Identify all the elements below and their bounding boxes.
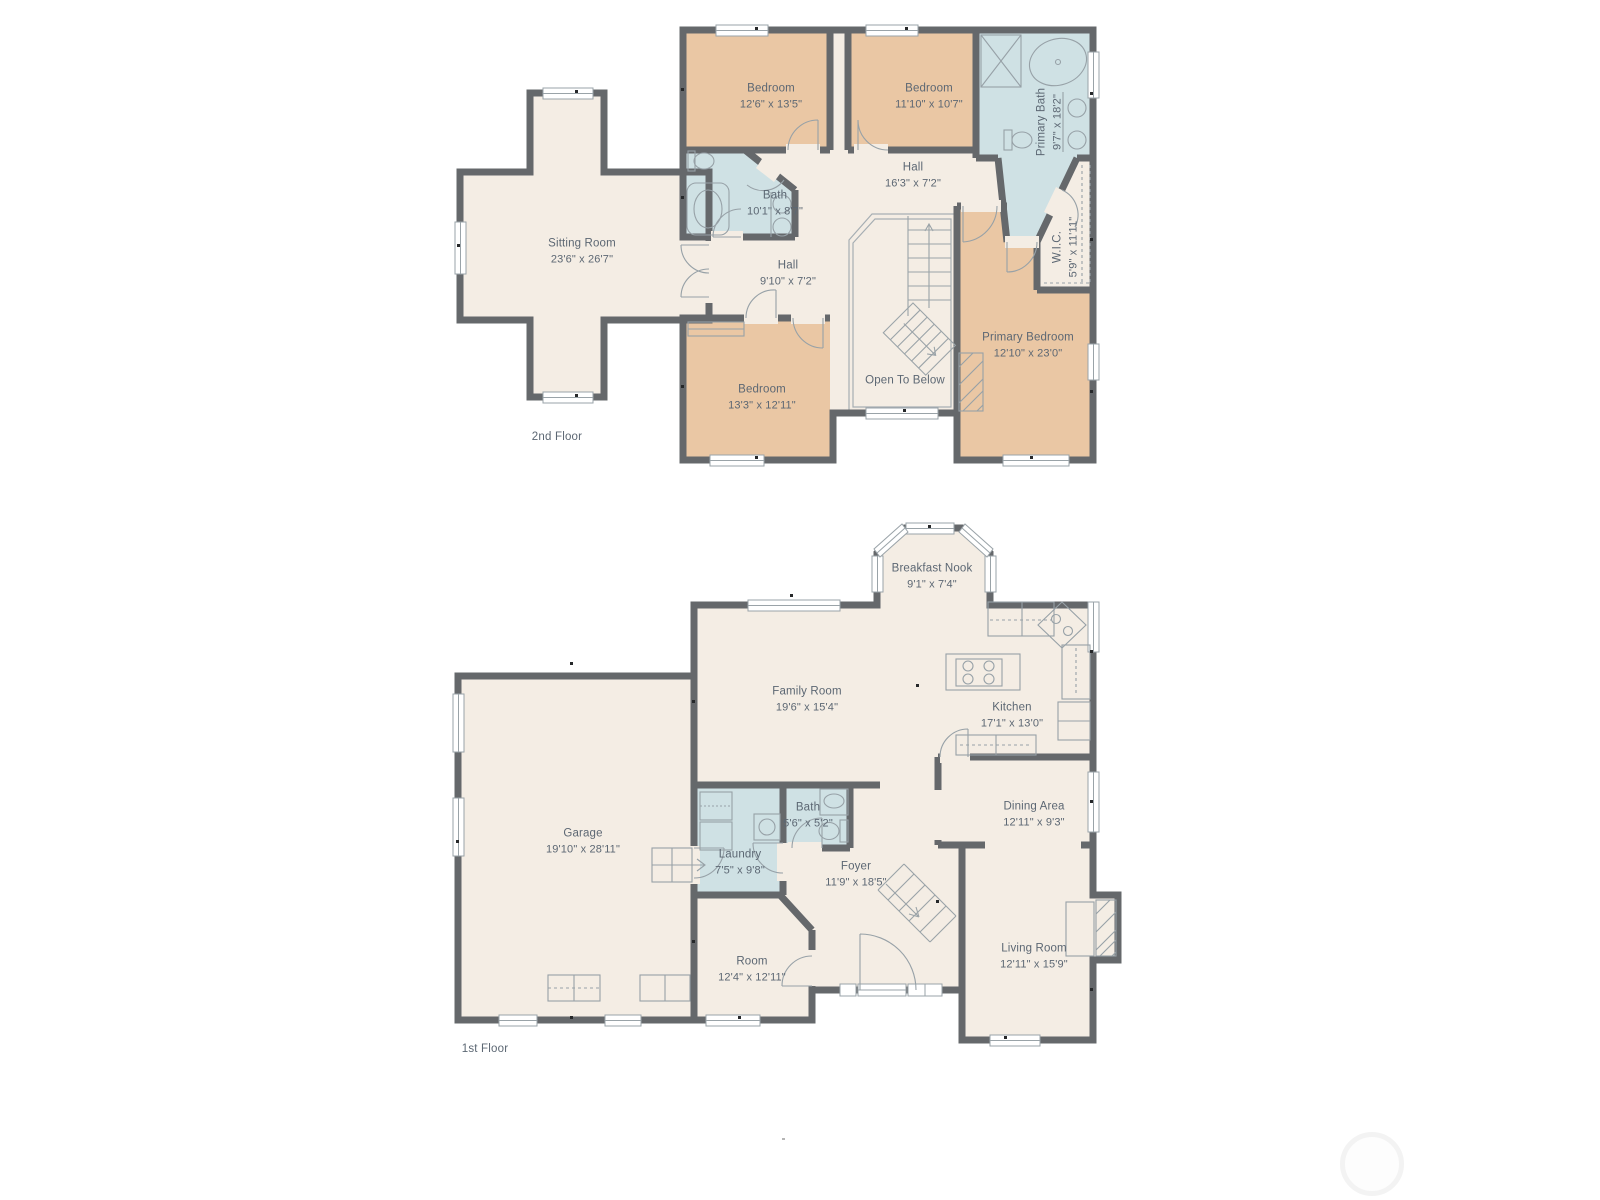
- floor-plan-drawing: [0, 0, 1600, 1200]
- room-label-wic: W.I.C. 5'9" x 11'11": [1050, 217, 1083, 278]
- room-label-foyer: Foyer 11'9" x 18'5": [825, 859, 886, 892]
- room-label-hall-upper: Hall 16'3" x 7'2": [885, 160, 941, 193]
- second-floor-title: 2nd Floor: [532, 431, 582, 443]
- room-label-primary-bedroom: Primary Bedroom 12'10" x 23'0": [982, 330, 1074, 363]
- room-label-open-to-below: Open To Below: [865, 373, 945, 390]
- watermark-circle: [1340, 1132, 1404, 1196]
- room-label-primary-bath: Primary Bath 9'7" x 18'2": [1034, 88, 1067, 156]
- first-floor-title: 1st Floor: [462, 1043, 509, 1055]
- room-label-kitchen: Kitchen 17'1" x 13'0": [981, 700, 1043, 733]
- room-label-laundry: Laundry 7'5" x 9'8": [715, 847, 765, 880]
- room-label-hall-bath: Bath 10'1" x 8'7": [747, 188, 803, 221]
- stray-dot: [782, 1138, 785, 1140]
- floor-plan-page: Bedroom 12'6" x 13'5" Bedroom 11'10" x 1…: [0, 0, 1600, 1200]
- room-label-dining-area: Dining Area 12'11" x 9'3": [1003, 799, 1064, 832]
- room-label-sitting-room: Sitting Room 23'6" x 26'7": [548, 236, 616, 269]
- room-label-room: Room 12'4" x 12'11": [718, 954, 786, 987]
- room-label-bedroom-bottom: Bedroom 13'3" x 12'11": [728, 382, 796, 415]
- front-door: [840, 984, 942, 996]
- room-label-bedroom-top-mid: Bedroom 11'10" x 10'7": [895, 81, 963, 114]
- room-label-living-room: Living Room 12'11" x 15'9": [1000, 941, 1068, 974]
- room-label-family-room: Family Room 19'6" x 15'4": [772, 684, 841, 717]
- room-label-hall-lower: Hall 9'10" x 7'2": [760, 258, 816, 291]
- room-label-powder-bath: Bath 5'6" x 5'2": [783, 800, 833, 833]
- room-label-garage: Garage 19'10" x 28'11": [546, 826, 620, 859]
- room-label-bedroom-top-left: Bedroom 12'6" x 13'5": [740, 81, 802, 114]
- room-label-breakfast-nook: Breakfast Nook 9'1" x 7'4": [892, 561, 973, 594]
